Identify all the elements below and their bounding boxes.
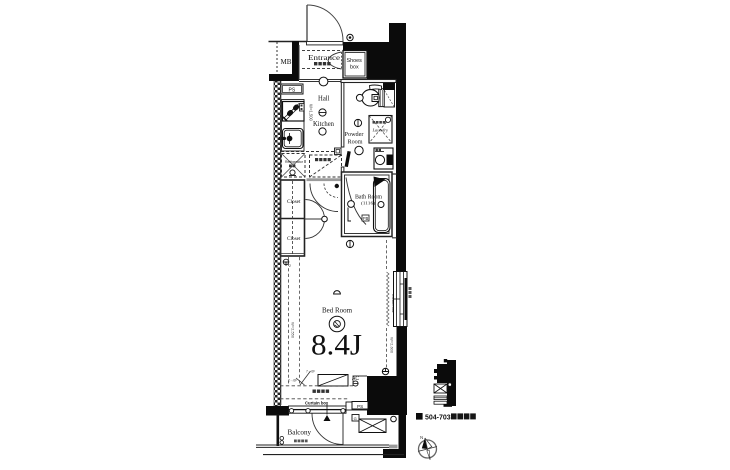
svg-text:PS: PS	[289, 88, 296, 94]
svg-text:Powder: Powder	[345, 131, 365, 138]
svg-text:504-703: 504-703	[425, 415, 451, 422]
svg-text:FB: FB	[363, 216, 369, 221]
svg-text:Laundry: Laundry	[372, 128, 390, 133]
svg-text:(1116): (1116)	[361, 201, 376, 206]
svg-text:Room: Room	[348, 139, 363, 146]
svg-text:PS: PS	[357, 404, 363, 409]
svg-text:Bed Room: Bed Room	[322, 307, 353, 315]
svg-text:Kitchen: Kitchen	[313, 120, 334, 128]
svg-text:MB: MB	[281, 57, 292, 66]
svg-text:W=1,500: W=1,500	[309, 104, 314, 122]
svg-text:Entrance: Entrance	[308, 53, 341, 62]
svg-text:Curtain box: Curtain box	[305, 401, 329, 406]
svg-text:Hall: Hall	[318, 95, 330, 103]
svg-text:2→6F: 2→6F	[288, 379, 297, 383]
svg-text:G: G	[354, 416, 357, 421]
svg-text:W=2,600: W=2,600	[390, 337, 395, 354]
svg-text:Closet: Closet	[287, 236, 301, 242]
svg-text:Closet: Closet	[287, 199, 301, 205]
svg-text:2: 2	[289, 264, 291, 268]
svg-text:box: box	[350, 65, 359, 71]
svg-text:Balcony: Balcony	[288, 429, 312, 437]
svg-text:N: N	[420, 435, 423, 440]
svg-text:7→6F: 7→6F	[306, 370, 315, 374]
svg-text:8.4J: 8.4J	[311, 329, 362, 362]
svg-text:Refrigerator: Refrigerator	[285, 160, 304, 164]
svg-text:Shoes: Shoes	[347, 58, 363, 64]
svg-text:W=2,550: W=2,550	[291, 322, 296, 339]
